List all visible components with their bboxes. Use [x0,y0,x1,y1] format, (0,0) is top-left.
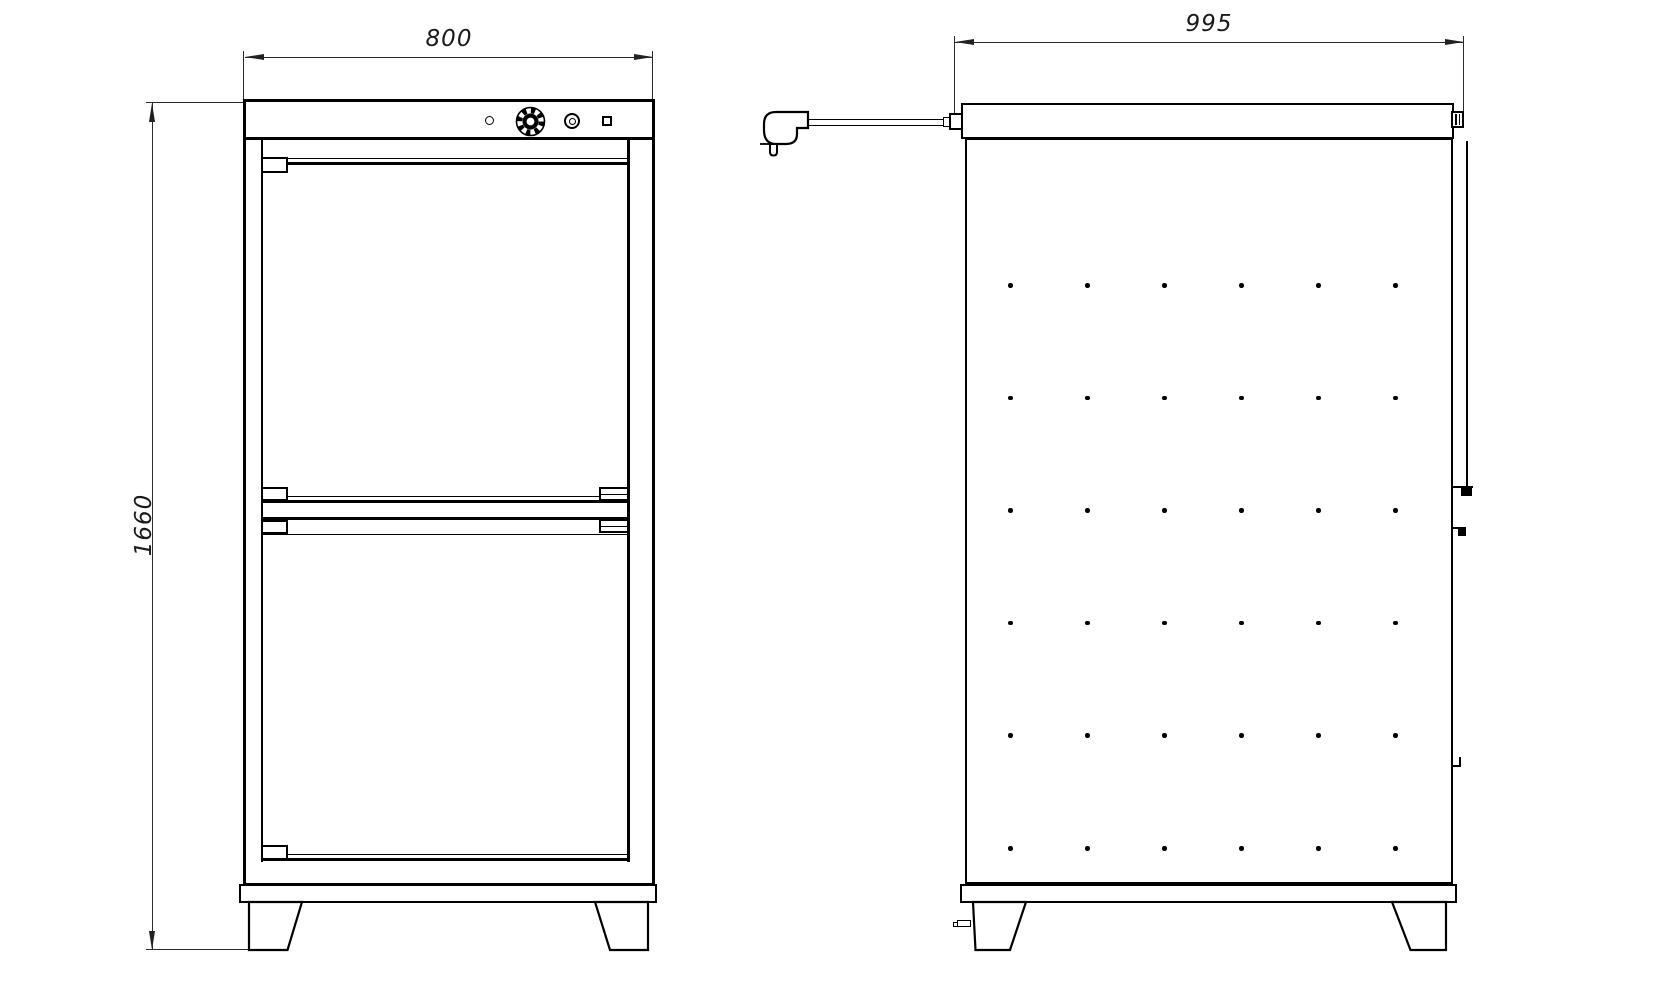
side-rear-leg [1392,902,1446,950]
side-front-leg [973,902,1026,950]
legs-layer [0,0,1654,1000]
front-left-leg [249,902,302,950]
technical-drawing-canvas: 800 1660 995 [0,0,1654,1000]
front-right-leg [595,902,648,950]
